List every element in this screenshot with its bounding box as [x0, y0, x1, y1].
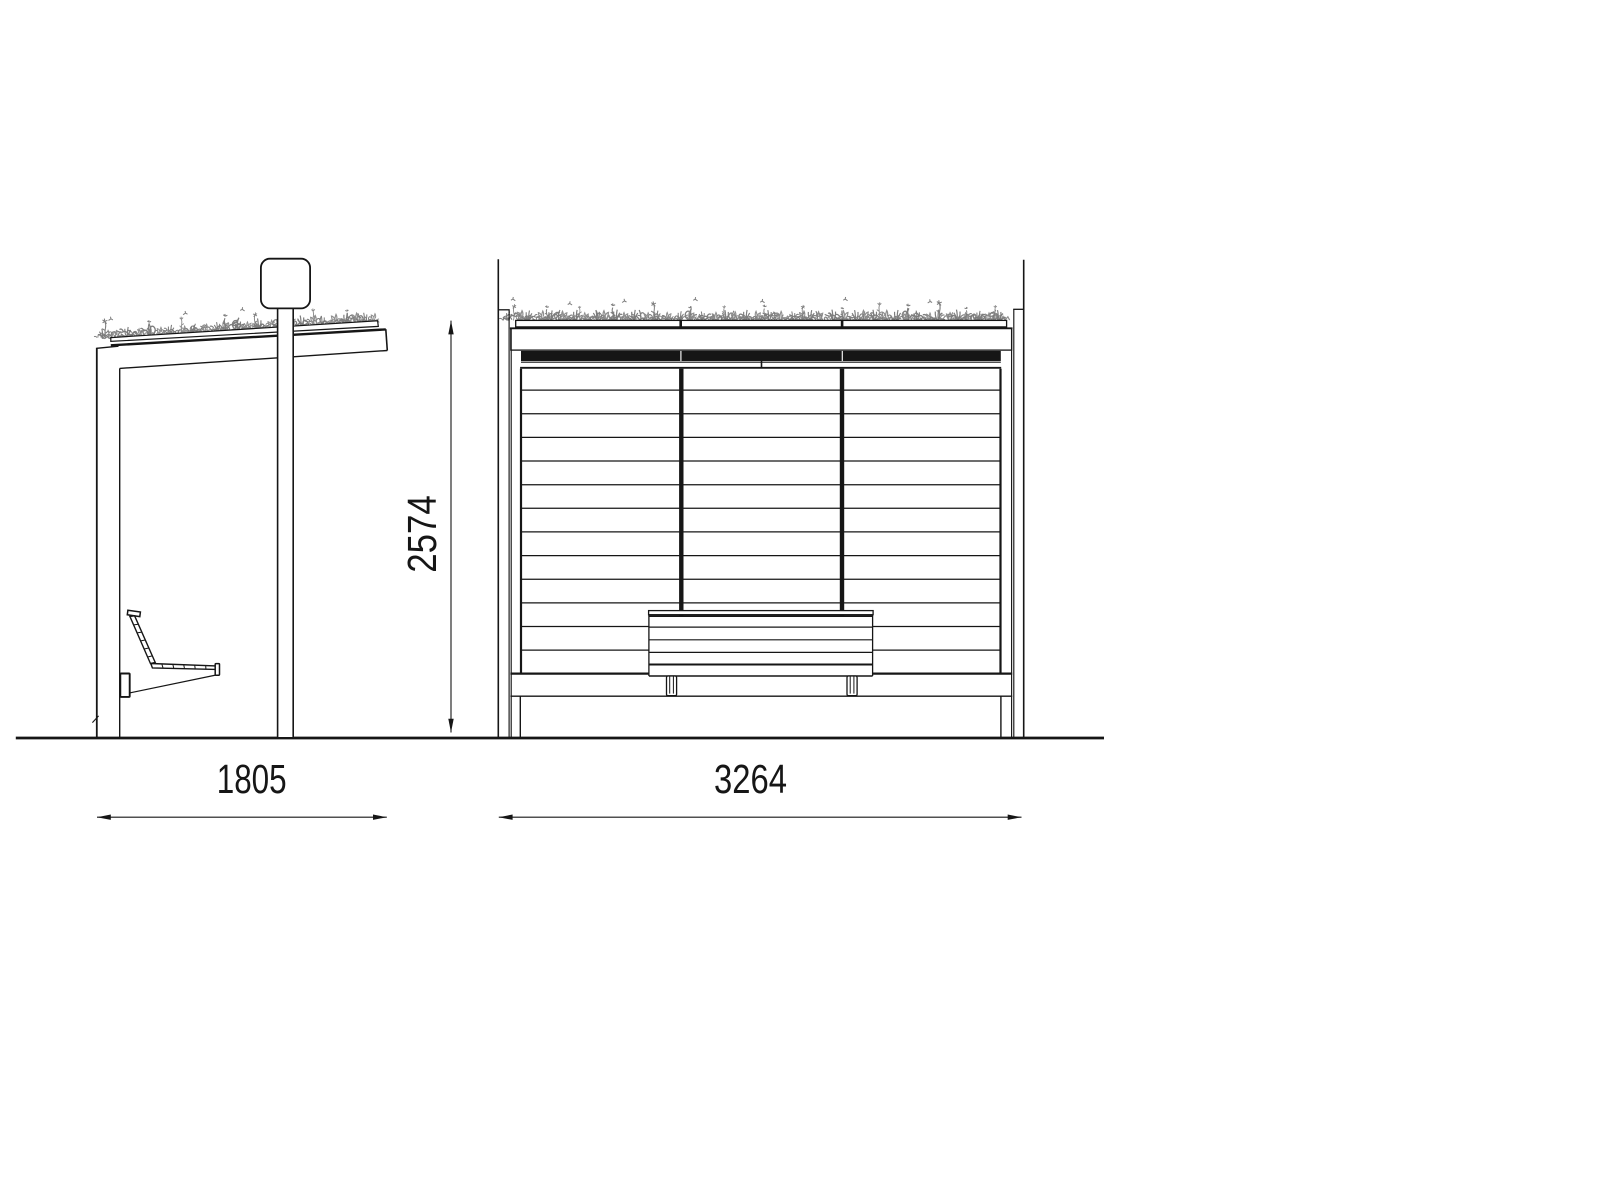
- svg-text:1805: 1805: [217, 756, 287, 802]
- svg-text:2574: 2574: [399, 495, 445, 573]
- svg-text:3264: 3264: [714, 756, 787, 802]
